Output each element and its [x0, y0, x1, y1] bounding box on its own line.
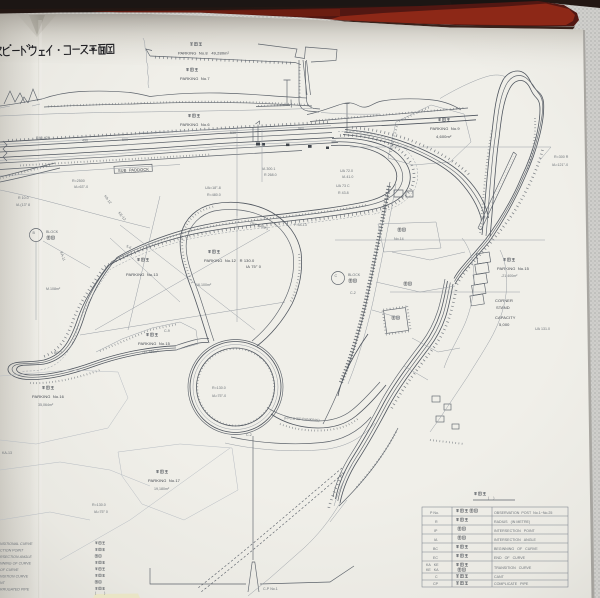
svg-text:OBSERVATION POST No.1~No.25: OBSERVATION POST No.1~No.25 — [494, 511, 552, 515]
svg-text:CTION POINT: CTION POINT — [0, 549, 24, 553]
svg-text:KA-13: KA-13 — [2, 451, 12, 455]
svg-text:R 268.0: R 268.0 — [264, 173, 277, 177]
svg-text:KE KA: KE KA — [426, 568, 439, 572]
svg-text:INTERSECTION ANGLE: INTERSECTION ANGLE — [494, 538, 537, 542]
svg-text:PARKING No.16: PARKING No.16 — [32, 394, 65, 399]
svg-text:RRUGATED PIPE: RRUGATED PIPE — [0, 588, 30, 592]
svg-text:CANT: CANT — [494, 575, 505, 579]
svg-text:IA=121°-0: IA=121°-0 — [552, 163, 568, 167]
svg-text:UA=18°-8: UA=18°-8 — [205, 186, 221, 190]
svg-text:4,600m²: 4,600m² — [436, 134, 452, 139]
svg-text:C-P No.1: C-P No.1 — [263, 587, 278, 591]
svg-text:PARKING No.7: PARKING No.7 — [180, 76, 210, 81]
svg-text:C-2: C-2 — [350, 291, 356, 295]
svg-text:OF CURVE: OF CURVE — [0, 568, 19, 572]
svg-text:R=130.0: R=130.0 — [92, 503, 106, 507]
svg-text:BLOCK: BLOCK — [348, 273, 361, 277]
svg-text:IA (13° 8: IA (13° 8 — [16, 203, 30, 207]
svg-text:C: C — [435, 575, 438, 579]
svg-text:19,180m²: 19,180m² — [154, 487, 170, 491]
svg-text:No.14: No.14 — [394, 237, 404, 241]
svg-text:-21,400m²: -21,400m² — [501, 274, 518, 278]
svg-text:NNING OF CURVE: NNING OF CURVE — [0, 562, 32, 566]
svg-text:R=300 R: R=300 R — [554, 155, 569, 159]
svg-text:NSITIONAL CURVE: NSITIONAL CURVE — [0, 542, 33, 546]
svg-text:R=2500: R=2500 — [72, 179, 85, 183]
svg-text:IA=63°-0: IA=63°-0 — [74, 185, 88, 189]
svg-text:C-2: C-2 — [246, 433, 252, 437]
svg-text:M.108m²: M.108m² — [46, 287, 61, 291]
svg-text:P No.: P No. — [430, 511, 439, 515]
svg-text:IA 41.0: IA 41.0 — [342, 175, 353, 179]
svg-text:INTERSECTION POINT: INTERSECTION POINT — [494, 529, 536, 533]
svg-text:CP: CP — [433, 582, 439, 586]
svg-text:R45-428: R45-428 — [36, 136, 50, 140]
svg-text:R=130.0: R=130.0 — [212, 386, 226, 390]
svg-text:BC: BC — [433, 547, 438, 551]
svg-text:BEGINNING OF CURVE: BEGINNING OF CURVE — [494, 547, 538, 551]
svg-text:IA 75° 0: IA 75° 0 — [246, 264, 262, 269]
svg-text:IA: IA — [434, 538, 438, 542]
svg-text:C-9: C-9 — [164, 329, 170, 333]
svg-text:CAPACITY: CAPACITY — [495, 315, 516, 320]
svg-text:R 10.0: R 10.0 — [18, 196, 29, 200]
svg-text:COMPLICATE PIPE: COMPLICATE PIPE — [494, 582, 529, 586]
svg-text:( ): ( ) — [488, 496, 494, 500]
svg-text:KA KE: KA KE — [426, 563, 439, 567]
svg-text:PARKING No.9: PARKING No.9 — [430, 126, 460, 131]
svg-text:PARKING No.12 R 130.0: PARKING No.12 R 130.0 — [204, 258, 255, 263]
svg-text:16,100m²: 16,100m² — [196, 283, 212, 287]
svg-text:PARKING No.15: PARKING No.15 — [497, 266, 530, 271]
svg-text:IA=75° 0: IA=75° 0 — [94, 510, 108, 514]
svg-text:NT: NT — [0, 581, 6, 585]
svg-text:UA 73 C: UA 73 C — [336, 184, 350, 188]
svg-text:IA 300.1: IA 300.1 — [262, 167, 275, 171]
svg-text:END OF CURVE: END OF CURVE — [494, 556, 526, 560]
svg-text:R=480.0: R=480.0 — [207, 193, 221, 197]
svg-text:IP: IP — [434, 529, 438, 533]
svg-text:( ): ( ) — [95, 591, 105, 595]
svg-text:35,064m²: 35,064m² — [38, 403, 54, 407]
svg-text:PARKING No.6: PARKING No.6 — [180, 122, 210, 127]
svg-text:C: C — [335, 274, 338, 278]
svg-text:EC: EC — [433, 556, 438, 560]
svg-text:-15,380m²: -15,380m² — [142, 350, 159, 354]
svg-text:IA=75°-0: IA=75°-0 — [212, 394, 226, 398]
svg-text:R: R — [435, 520, 438, 524]
svg-text:PARKING No.8 49,280m²: PARKING No.8 49,280m² — [178, 51, 230, 56]
svg-text:R 43.8: R 43.8 — [338, 191, 349, 195]
svg-text:500: 500 — [122, 138, 128, 142]
svg-text:RSECTION ANGLE: RSECTION ANGLE — [0, 555, 32, 559]
svg-text:UA 131.0: UA 131.0 — [535, 327, 550, 331]
svg-text:PARKING No.17: PARKING No.17 — [148, 478, 181, 483]
svg-text:UA 72.0: UA 72.0 — [340, 169, 353, 173]
svg-text:BLOCK: BLOCK — [46, 230, 59, 234]
svg-text:NSITION CURVE: NSITION CURVE — [0, 575, 29, 579]
svg-text:PARKING No.15: PARKING No.15 — [138, 341, 171, 346]
svg-text:560: 560 — [298, 127, 304, 131]
svg-text:CORNER: CORNER — [495, 298, 513, 303]
svg-text:RADIUS (IN METRE): RADIUS (IN METRE) — [494, 520, 530, 524]
svg-text:490: 490 — [82, 139, 88, 143]
svg-text:TRANSITION CURVE: TRANSITION CURVE — [494, 566, 532, 570]
svg-text:530: 530 — [230, 131, 236, 135]
svg-text:5,000: 5,000 — [499, 322, 510, 327]
svg-text:BP-7: BP-7 — [54, 351, 62, 355]
svg-text:PARKING No.13: PARKING No.13 — [126, 272, 159, 277]
